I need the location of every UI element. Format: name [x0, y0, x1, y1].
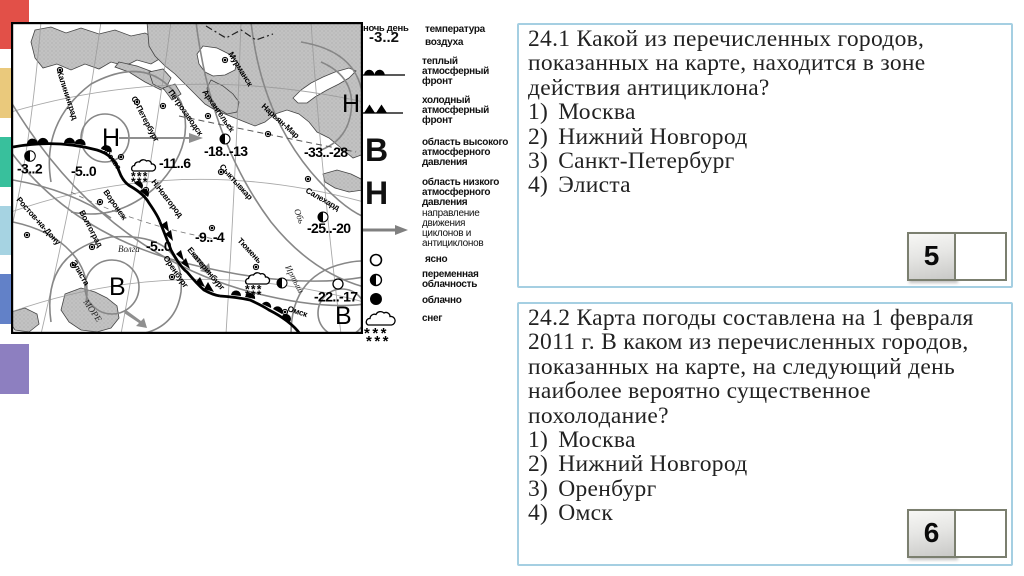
svg-text:В: В: [109, 273, 126, 301]
svg-text:-9..-4: -9..-4: [195, 229, 225, 245]
svg-text:***: ***: [366, 333, 391, 347]
svg-text:В: В: [335, 302, 352, 330]
svg-text:-33..-28: -33..-28: [304, 144, 348, 160]
svg-text:Н: Н: [102, 124, 120, 152]
svg-text:-11..6: -11..6: [159, 155, 191, 171]
svg-text:-25..-20: -25..-20: [307, 220, 351, 236]
svg-text:-18..-13: -18..-13: [204, 143, 248, 159]
svg-text:***: ***: [131, 175, 149, 189]
svg-text:***: ***: [245, 288, 263, 302]
svg-text:-3..2: -3..2: [17, 161, 43, 177]
svg-text:Н: Н: [342, 90, 360, 118]
svg-text:-5..0: -5..0: [71, 163, 97, 179]
svg-text:-5..0: -5..0: [146, 238, 172, 254]
svg-text:Волга: Волга: [118, 244, 140, 254]
